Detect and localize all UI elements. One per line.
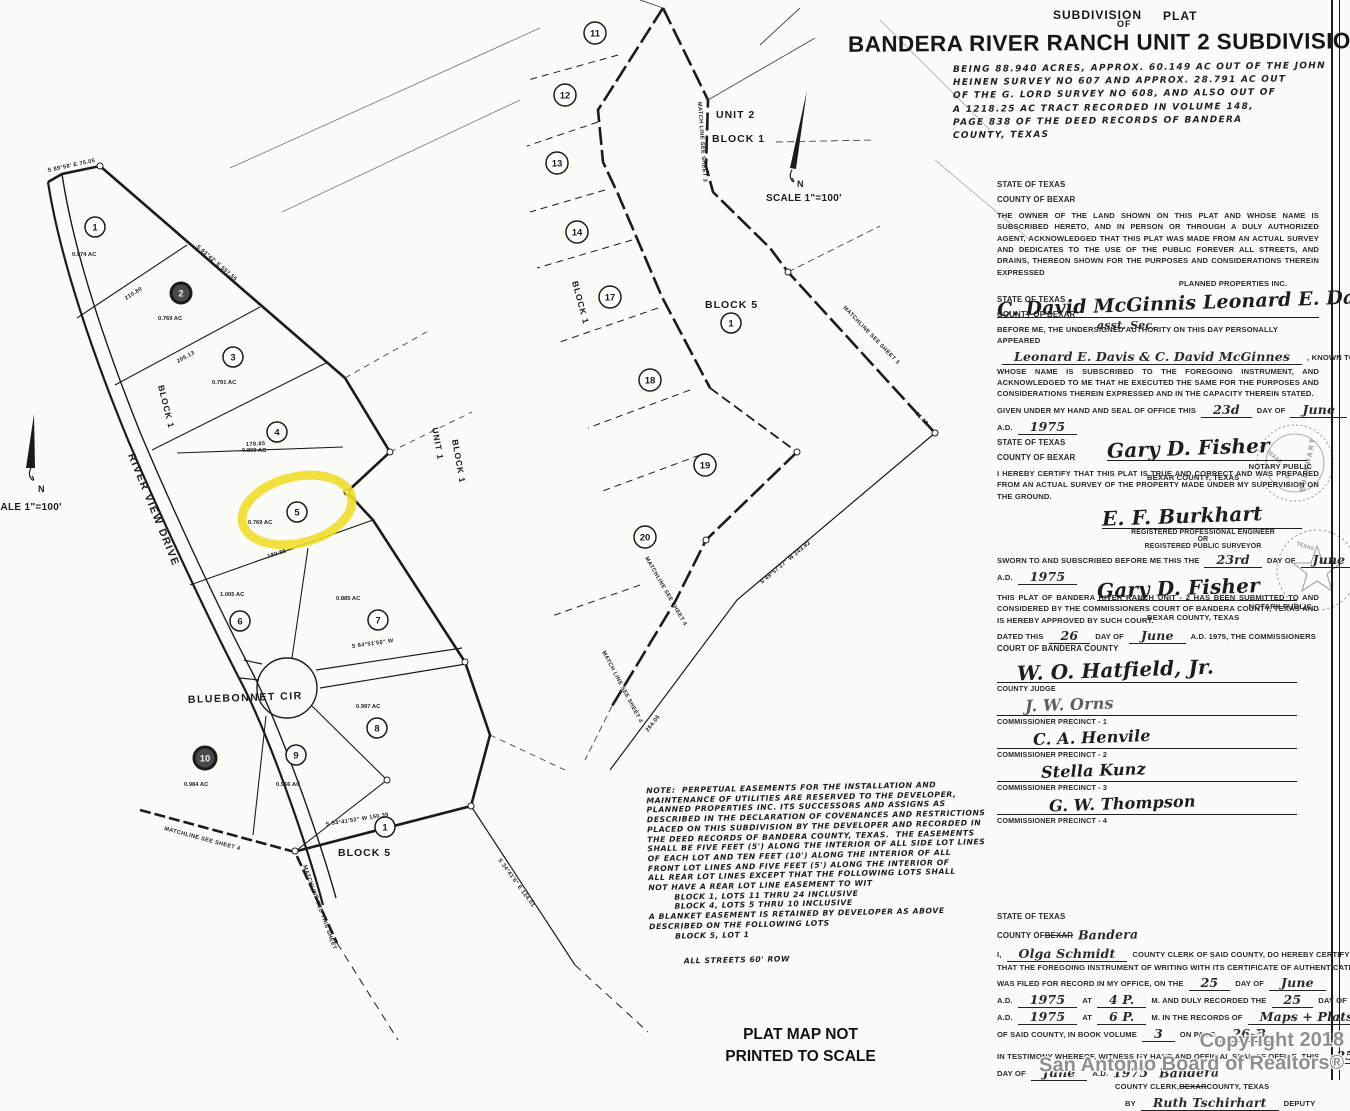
bearing-label: 264.06: [645, 714, 662, 733]
block5-east-line-dashed: [337, 943, 648, 1040]
bearing-label: S 49°57'27" W 243.82: [759, 540, 812, 586]
title-description: BEING 88.940 ACRES, APPROX. 60.149 AC OU…: [953, 62, 1333, 141]
owner-body-text: THE OWNER OF THE LAND SHOWN ON THIS PLAT…: [997, 210, 1319, 278]
text-segment: 1975: [1018, 419, 1077, 435]
bluebonnet-culdesac: [257, 658, 317, 718]
map-label-scale-1-100-: SCALE 1"=100': [766, 193, 842, 204]
text-segment: 1975: [1018, 992, 1077, 1008]
official-signature: Stella Kunz: [1041, 759, 1146, 782]
text-segment: DATED THIS: [997, 631, 1044, 642]
map-label-block-1: BLOCK 1: [570, 280, 591, 325]
middle-map-west-boundary: [598, 8, 710, 388]
subdivision-title: BANDERA RIVER RANCH UNIT 2 SUBDIVISION: [848, 28, 1350, 58]
text-segment: 23rd: [1204, 552, 1261, 568]
title-description-line: COUNTY, TEXAS: [953, 126, 1333, 143]
bearing-label: 178.85: [246, 441, 266, 448]
text-segment: STATE OF TEXAS: [997, 911, 1065, 923]
owner-company: PLANNED PROPERTIES INC.: [997, 278, 1319, 289]
text-segment: BEXAR: [1045, 930, 1073, 942]
clerk-state-line: STATE OF TEXAS: [997, 911, 1329, 923]
clerk-deputy-line: BYRuth TschirhartDEPUTY: [1125, 1094, 1329, 1110]
notary-state-line: STATE OF TEXAS: [997, 294, 1319, 306]
lot-number: 7: [375, 615, 380, 626]
surveyor-state-line: STATE OF TEXAS: [997, 437, 1319, 449]
left-map-lot-lines: [77, 245, 387, 850]
text-segment: COUNTY CLERK,: [1115, 1081, 1179, 1092]
bearing-label: MATCH LINE SEE SHEET 4: [600, 650, 643, 724]
signature-label: COUNTY JUDGE: [997, 684, 1319, 693]
lot-number: 2: [178, 288, 183, 299]
surveyor-credential-or: OR: [1087, 536, 1319, 543]
text-segment: DAY OF: [997, 1068, 1026, 1079]
text-segment: Bandera: [1078, 926, 1138, 942]
lot-number: 3: [230, 352, 235, 363]
owner-state-line: STATE OF TEXAS: [997, 179, 1319, 191]
lot-number: 19: [700, 460, 711, 471]
map-label-river-view-drive: RIVER VIEW DRIVE: [125, 452, 181, 569]
court-signature-row: Stella KunzCOMMISSIONER PRECINCT - 3: [997, 761, 1319, 792]
text-segment: June: [1301, 552, 1350, 568]
middle-north-arrow: [790, 90, 807, 169]
lot-acreage: 0.809 AC: [242, 448, 267, 454]
court-signature-row: G. W. ThompsonCOMMISSIONER PRECINCT - 4: [997, 794, 1319, 825]
middle-map-west-jog: [710, 388, 797, 452]
court-signature-rows: W. O. Hatfield, Jr.COUNTY JUDGEJ. W. Orn…: [997, 658, 1319, 825]
court-signature-row: W. O. Hatfield, Jr.COUNTY JUDGE: [997, 658, 1319, 693]
signature-label: COMMISSIONER PRECINCT - 1: [997, 717, 1319, 726]
official-signature: C. A. Henvile: [1033, 726, 1151, 749]
text-segment: Leonard E. Davis & C. David McGinnes: [1002, 349, 1302, 365]
signature-label: COMMISSIONER PRECINCT - 2: [997, 750, 1319, 759]
map-label-scale-1-100-: SCALE 1"=100': [0, 502, 62, 513]
text-segment: 1975: [1018, 1009, 1077, 1025]
text-segment: 1975: [1018, 569, 1077, 585]
text-segment: GIVEN UNDER MY HAND AND SEAL OF OFFICE T…: [997, 405, 1196, 416]
official-signature: G. W. Thompson: [1049, 791, 1196, 815]
text-segment: 25: [1189, 975, 1231, 991]
lot-acreage: 0.966 AC: [276, 782, 301, 788]
notary-given-line: GIVEN UNDER MY HAND AND SEAL OF OFFICE T…: [997, 401, 1319, 417]
watermark-line-2: San Antonio Board of Realtors®: [1039, 1052, 1344, 1078]
lot-number: 9: [293, 750, 298, 761]
text-segment: M. IN THE RECORDS OF: [1151, 1012, 1242, 1023]
lot-acreage: 0.997 AC: [356, 704, 381, 710]
text-segment: I,: [997, 949, 1002, 960]
commissioners-court-block: THIS PLAT OF BANDERA RIVER RANCH UNIT - …: [997, 588, 1319, 825]
left-north-arrow-hook: [29, 468, 33, 480]
text-segment: SWORN TO AND SUBSCRIBED BEFORE ME THIS T…: [997, 555, 1199, 566]
lot-number: 6: [237, 616, 242, 627]
text-segment: BEXAR: [1179, 1081, 1206, 1092]
lot-number: 17: [605, 292, 616, 303]
bearing-label: 210.80: [124, 286, 144, 301]
middle-map-lot-lines: [527, 55, 700, 616]
text-segment: DAY OF: [1257, 405, 1286, 416]
text-segment: , KNOWN TO ME TO BE THE PERSON: [1307, 352, 1350, 363]
notary-intro: BEFORE ME, THE UNDERSIGNED AUTHORITY ON …: [997, 324, 1319, 347]
not-to-scale-line-1: PLAT MAP NOT: [693, 1024, 908, 1046]
text-segment: A.D.: [997, 422, 1013, 433]
lot-number: 1: [92, 222, 98, 233]
text-segment: COUNTY CLERK OF SAID COUNTY, DO HEREBY C…: [1132, 949, 1349, 960]
text-segment: A.D.: [997, 572, 1013, 583]
text-segment: June: [1129, 628, 1186, 644]
lot-number: 18: [645, 375, 656, 386]
text-segment: Maps + Plats: [1248, 1009, 1350, 1025]
clerk-recorded-line: A.D.1975AT4 P.M. AND DULY RECORDED THE25…: [997, 991, 1329, 1007]
map-label-n: N: [797, 179, 804, 189]
lot-number: 4: [274, 427, 280, 438]
text-segment: June: [1290, 402, 1347, 418]
scan-border-line-1: [1331, 0, 1333, 1080]
bearing-label: 180.85: [267, 548, 287, 559]
text-segment: THAT THE FOREGOING INSTRUMENT OF WRITING…: [997, 962, 1350, 973]
signature-label: COMMISSIONER PRECINCT - 4: [997, 816, 1319, 825]
map-label-bluebonnet-cir: BLUEBONNET CIR: [188, 690, 303, 706]
map-label-n: N: [38, 484, 45, 494]
map-label-block-5: BLOCK 5: [705, 299, 758, 311]
text-segment: DEPUTY: [1284, 1098, 1316, 1109]
text-segment: AT: [1082, 995, 1092, 1006]
not-to-scale-notice: PLAT MAP NOT PRINTED TO SCALE: [693, 1024, 908, 1068]
map-label-block-5: BLOCK 5: [338, 847, 391, 859]
text-segment: DAY OF: [1318, 995, 1347, 1006]
lot-number: 10: [200, 753, 211, 764]
text-segment: COUNTY, TEXAS: [1207, 1081, 1270, 1092]
court-signature-row: C. A. HenvileCOMMISSIONER PRECINCT - 2: [997, 728, 1319, 759]
bearing-label: MATCHLINE SEE SHEET 4: [163, 826, 241, 852]
river-view-drive-inner-edge: [62, 174, 336, 898]
scanned-plat-document: { "page": { "watermark1": "Copyright 201…: [0, 0, 1350, 1080]
street-stub: [316, 648, 466, 688]
map-label-block-1: BLOCK 1: [156, 384, 176, 429]
lot-number: 14: [572, 227, 583, 238]
lot-number: 20: [640, 532, 651, 543]
clerk-instrument-line: THAT THE FOREGOING INSTRUMENT OF WRITING…: [997, 962, 1329, 973]
lot-acreage: 0.791 AC: [212, 380, 237, 386]
left-map-boundary: [48, 166, 490, 851]
surveyor-sworn-line: SWORN TO AND SUBSCRIBED BEFORE ME THIS T…: [997, 551, 1319, 567]
lot-acreage: 0.974 AC: [72, 252, 97, 258]
title-kicker-plat: PLAT: [1163, 9, 1197, 23]
official-signature: W. O. Hatfield, Jr.: [1017, 655, 1215, 686]
lot-number: 11: [590, 28, 601, 39]
text-segment: 4 P.: [1097, 992, 1146, 1008]
court-dated-line: DATED THIS26DAY OFJuneA.D. 1975, THE COM…: [997, 627, 1319, 643]
middle-north-arrow-hook: [790, 170, 793, 182]
watermark-line-1: Copyright 2018: [1039, 1029, 1344, 1055]
clerk-certify-line: I,Olga SchmidtCOUNTY CLERK OF SAID COUNT…: [997, 945, 1329, 961]
official-signature: J. W. Orns: [1025, 693, 1114, 715]
not-to-scale-line-2: PRINTED TO SCALE: [693, 1046, 908, 1068]
bearing-label: MATCHLINE SEE THIS SHEET: [301, 865, 337, 951]
map-label-unit-2: UNIT 2: [716, 109, 755, 121]
text-segment: DAY OF: [1267, 555, 1296, 566]
surveyor-county-line: COUNTY OF BEXAR: [997, 452, 1319, 464]
left-north-arrow: [26, 414, 35, 468]
easement-note-lines: NOTE: PERPETUAL EASEMENTS FOR THE INSTAL…: [646, 780, 959, 942]
lot-number: 5: [294, 507, 300, 518]
text-segment: 26: [1049, 628, 1091, 644]
text-segment: June: [1269, 975, 1326, 991]
court-signature-row: J. W. OrnsCOMMISSIONER PRECINCT - 1: [997, 695, 1319, 726]
text-segment: A.D.: [997, 995, 1013, 1006]
court-line2: COURT OF BANDERA COUNTY: [997, 643, 1319, 655]
easement-note-block: NOTE: PERPETUAL EASEMENTS FOR THE INSTAL…: [646, 780, 960, 967]
lot-acreage: 0.769 AC: [158, 316, 183, 322]
notary-county-line: COUNTY OF BEXAR: [997, 309, 1319, 321]
signature-label: COMMISSIONER PRECINCT - 3: [997, 783, 1319, 792]
text-segment: M. AND DULY RECORDED THE: [1151, 995, 1266, 1006]
text-segment: DAY OF: [1095, 631, 1124, 642]
left-map-faint-lines: [230, 28, 540, 212]
text-segment: A.D. 1975, THE COMMISSIONERS: [1191, 631, 1316, 642]
owner-county-line: COUNTY OF BEXAR: [997, 194, 1319, 206]
clerk-county-line: COUNTY OFBEXARBandera: [997, 926, 1329, 942]
map-label-unit-1: UNIT 1: [430, 427, 446, 461]
text-segment: A.D.: [997, 1012, 1013, 1023]
text-segment: 23d: [1201, 402, 1252, 418]
bearing-label: S 84°51'56" W: [351, 638, 394, 650]
map-label-block-1: BLOCK 1: [712, 133, 765, 145]
text-segment: 6 P.: [1097, 1009, 1146, 1025]
lot-number: 1: [382, 822, 388, 833]
surveyor-credential-2: REGISTERED PUBLIC SURVEYOR: [1087, 543, 1319, 550]
lot-number: 8: [374, 723, 379, 734]
text-segment: Olga Schmidt: [1007, 946, 1128, 962]
court-body: THIS PLAT OF BANDERA RIVER RANCH UNIT - …: [997, 592, 1319, 626]
surveyor-body: I HEREBY CERTIFY THAT THIS PLAT IS TRUE …: [997, 468, 1319, 502]
lot-acreage: 0.984 AC: [184, 782, 209, 788]
text-segment: Ruth Tschirhart: [1141, 1095, 1279, 1111]
text-segment: DAY OF: [1235, 978, 1264, 989]
clerk-office-line: COUNTY CLERK,BEXARCOUNTY, TEXAS: [1115, 1081, 1329, 1092]
clerk-filed-line: WAS FILED FOR RECORD IN MY OFFICE, ON TH…: [997, 974, 1329, 990]
notary-names-line: Leonard E. Davis & C. David McGinnes, KN…: [997, 348, 1319, 364]
lot-acreage: 0.769 AC: [248, 520, 273, 526]
text-segment: AT: [1082, 1012, 1092, 1023]
lot-acreage: 1.005 AC: [220, 592, 245, 598]
bearing-label: S 34°41'6" E 124.01: [496, 858, 535, 909]
lot-acreage: 0.885 AC: [336, 596, 361, 602]
block5-east-line: [471, 806, 575, 965]
bearing-label: 205.13: [176, 350, 196, 365]
text-segment: COUNTY OF: [997, 930, 1045, 942]
bearing-label: MATCHLINE SEE SHEET 3: [842, 305, 901, 366]
notary-ad-line: A.D.1975: [997, 418, 1319, 434]
notary-body: WHOSE NAME IS SUBSCRIBED TO THE FOREGOIN…: [997, 366, 1319, 400]
text-segment: WAS FILED FOR RECORD IN MY OFFICE, ON TH…: [997, 978, 1184, 989]
lot-number: 13: [552, 158, 563, 169]
title-kicker-of: OF: [1117, 19, 1132, 29]
copyright-watermark: Copyright 2018 San Antonio Board of Real…: [1039, 1029, 1345, 1078]
clerk-records-line: A.D.1975AT6 P.M. IN THE RECORDS OFMaps +…: [997, 1008, 1329, 1024]
middle-map-east-boundary: [663, 8, 935, 433]
surveyor-signature-row: E. F. Burkhart: [1102, 504, 1302, 529]
bearing-label: 51.68: [914, 411, 929, 427]
bearing-label: S 63°42' E 557.55: [195, 244, 238, 283]
text-segment: 25: [1272, 992, 1314, 1008]
map-label-block-1: BLOCK 1: [450, 439, 468, 484]
lot-number: 1: [728, 318, 734, 329]
lot-number: 12: [560, 90, 571, 101]
scan-border-line-2: [1339, 0, 1340, 1080]
text-segment: BY: [1125, 1098, 1136, 1109]
surveyor-signature: E. F. Burkhart: [1102, 501, 1263, 531]
